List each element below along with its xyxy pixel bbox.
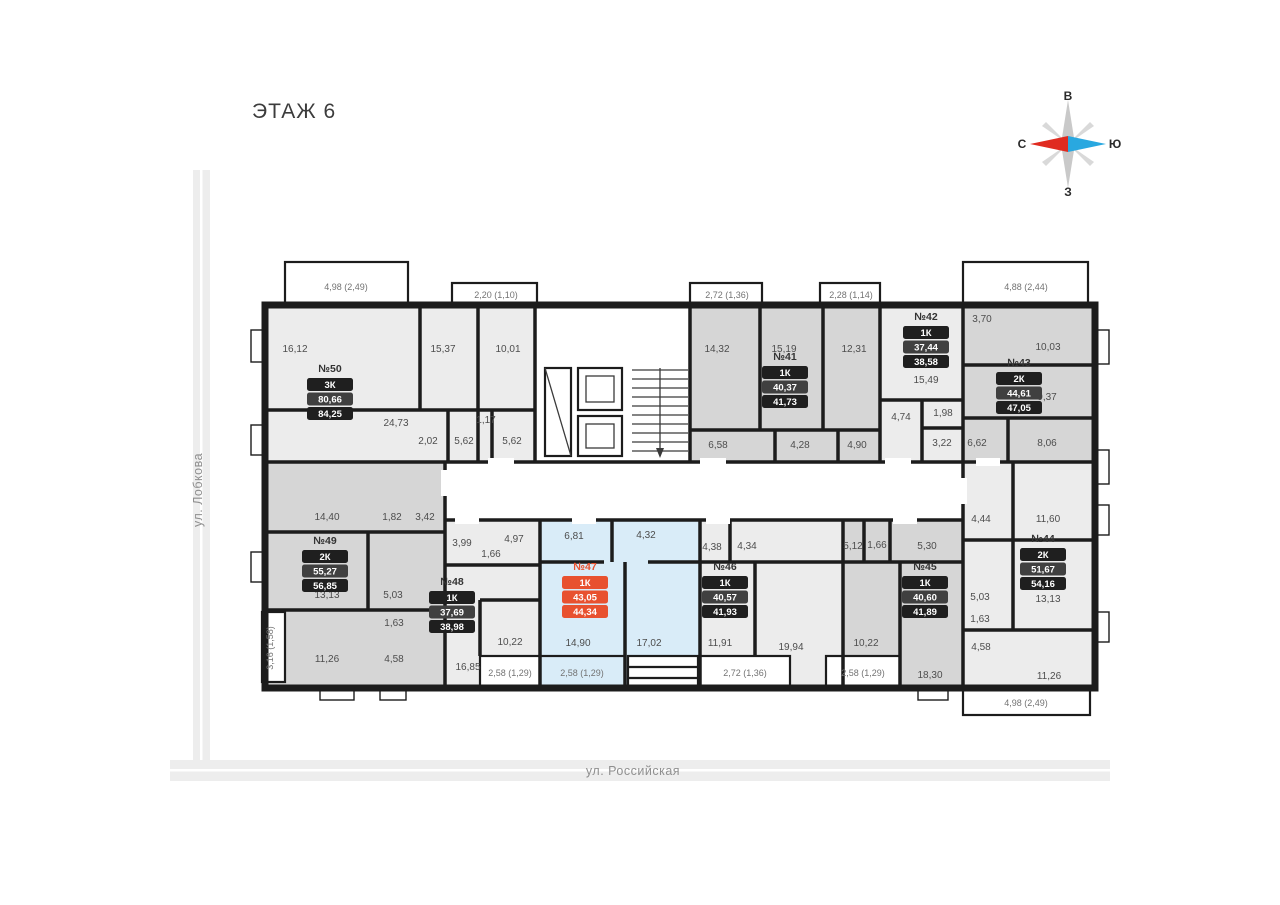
room-area-label: 16,12 <box>282 344 307 355</box>
room-area-label: 2,02 <box>418 436 438 447</box>
badge-value-area_with_balcony: 38,98 <box>440 622 464 633</box>
room-area-label: 3,70 <box>972 314 992 325</box>
apartment-number[interactable]: №47 <box>573 561 597 573</box>
compass: В Ю З С <box>1018 89 1122 199</box>
apartment-number[interactable]: №49 <box>313 535 337 547</box>
room-area-label: 24,73 <box>383 418 408 429</box>
balcony-dim-label: 4,98 (2,49) <box>1004 698 1048 708</box>
badge-value-type: 1К <box>920 328 931 339</box>
balcony-dim-label: 4,88 (2,44) <box>1004 282 1048 292</box>
room-area-label: 1,17 <box>476 415 496 426</box>
compass-needle-red <box>1030 136 1068 152</box>
badge-value-type: 2К <box>1037 550 1048 561</box>
street-label-rossiyskaya: ул. Российская <box>586 764 680 778</box>
room-area-label: 3,99 <box>452 538 472 549</box>
balcony-dim-label: 2,28 (1,14) <box>829 290 873 300</box>
room-area-label: 10,22 <box>497 637 522 648</box>
room-area-label: 1,66 <box>481 549 501 560</box>
apartment-number[interactable]: №50 <box>318 363 342 375</box>
room-area-label: 19,94 <box>778 642 803 653</box>
room-area-label: 10,01 <box>495 344 520 355</box>
room-area-label: 1,66 <box>867 540 887 551</box>
core-area <box>535 305 690 462</box>
room-area-label: 15,49 <box>913 375 938 386</box>
compass-label-s: С <box>1018 137 1027 151</box>
badge-value-area_with_balcony: 38,58 <box>914 357 938 368</box>
compass-label-z: З <box>1064 185 1072 199</box>
badge-value-area_total: 40,37 <box>773 383 797 394</box>
room-area-label: 6,58 <box>708 440 728 451</box>
badge-value-type: 1К <box>579 578 590 589</box>
room-area-label: 5,03 <box>383 590 403 601</box>
badge-value-area_total: 55,27 <box>313 567 337 578</box>
room-area-label: 4,58 <box>971 642 991 653</box>
room-area-label: 3,42 <box>415 512 435 523</box>
badge-value-area_total: 40,57 <box>713 593 737 604</box>
room-area-label: 14,90 <box>565 638 590 649</box>
room-area-label: 4,74 <box>891 412 911 423</box>
badge-value-area_total: 80,66 <box>318 395 342 406</box>
apartment-number[interactable]: №46 <box>713 561 737 573</box>
badge-value-type: 3К <box>324 380 335 391</box>
badge-value-area_with_balcony: 47,05 <box>1007 403 1031 414</box>
street-lobkova-band: ул. Лобкова <box>191 170 210 761</box>
room-area-label: 15,37 <box>430 344 455 355</box>
unit-50-area[interactable] <box>265 305 535 462</box>
room-area-label: 1,82 <box>382 512 402 523</box>
badge-value-type: 1К <box>919 578 930 589</box>
room-area-label: 11,91 <box>708 638 733 649</box>
room-area-label: 5,62 <box>502 436 522 447</box>
room-area-label: 1,63 <box>384 618 404 629</box>
badge-value-area_with_balcony: 84,25 <box>318 409 342 420</box>
room-area-label: 18,30 <box>917 670 942 681</box>
entrance-porch <box>628 656 698 688</box>
compass-label-v: В <box>1064 89 1073 103</box>
apartment-number[interactable]: №43 <box>1007 357 1031 369</box>
room-area-label: 6,81 <box>564 531 584 542</box>
room-area-label: 14,32 <box>704 344 729 355</box>
badge-value-area_total: 43,05 <box>573 593 597 604</box>
balcony-dim-label: 2,58 (1,29) <box>488 668 532 678</box>
badge-value-area_total: 40,60 <box>913 593 937 604</box>
room-area-label: 3,22 <box>932 438 952 449</box>
room-area-label: 13,13 <box>1035 594 1060 605</box>
badge-value-type: 1К <box>779 368 790 379</box>
room-area-label: 5,03 <box>970 592 990 603</box>
room-area-label: 1,63 <box>970 614 990 625</box>
badge-value-area_total: 37,69 <box>440 608 464 619</box>
room-area-label: 10,22 <box>853 638 878 649</box>
apartment-number[interactable]: №48 <box>440 576 464 588</box>
room-area-label: 14,40 <box>314 512 339 523</box>
room-area-label: 11,26 <box>315 654 340 665</box>
room-area-label: 4,38 <box>702 542 722 553</box>
balcony-dim-label: 2,20 (1,10) <box>474 290 518 300</box>
room-area-label: 4,97 <box>504 534 524 545</box>
room-area-label: 16,85 <box>455 662 480 673</box>
badge-value-area_with_balcony: 54,16 <box>1031 579 1055 590</box>
room-area-label: 12,31 <box>841 344 866 355</box>
room-area-label: 4,34 <box>737 541 757 552</box>
balcony-dim-label: 2,58 (1,29) <box>560 668 604 678</box>
corridor-area <box>445 462 963 520</box>
balcony-dim-label: 2,72 (1,36) <box>705 290 749 300</box>
badge-value-area_with_balcony: 41,93 <box>713 607 737 618</box>
room-area-label: 10,03 <box>1035 342 1060 353</box>
badge-value-area_total: 37,44 <box>914 343 938 354</box>
floor-plan-page: ЭТАЖ 6 ул. Лобкова ул. Российская В Ю З … <box>0 0 1280 905</box>
room-area-label: 1,98 <box>933 408 953 419</box>
unit-49-area[interactable] <box>265 462 445 688</box>
room-area-label: 4,32 <box>636 530 656 541</box>
balcony-dim-label: 2,72 (1,36) <box>723 668 767 678</box>
apartment-number[interactable]: №42 <box>914 311 938 323</box>
badge-value-area_with_balcony: 41,73 <box>773 397 797 408</box>
room-area-label: 5,62 <box>454 436 474 447</box>
floor-plan-canvas: ул. Лобкова ул. Российская В Ю З С <box>0 0 1280 905</box>
room-area-label: 8,06 <box>1037 438 1057 449</box>
street-label-lobkova: ул. Лобкова <box>191 453 205 527</box>
room-area-label: 4,44 <box>971 514 991 525</box>
room-area-label: 6,62 <box>967 438 987 449</box>
badge-value-type: 1К <box>446 593 457 604</box>
badge-value-area_total: 51,67 <box>1031 565 1055 576</box>
room-area-label: 5,30 <box>917 541 937 552</box>
street-rossiyskaya-band: ул. Российская <box>170 760 1110 781</box>
room-area-label: 11,60 <box>1036 514 1061 525</box>
apartment-number[interactable]: №44 <box>1031 533 1055 545</box>
apartment-number[interactable]: №41 <box>773 351 797 363</box>
badge-value-area_with_balcony: 56,85 <box>313 581 337 592</box>
room-area-label: 4,90 <box>847 440 867 451</box>
badge-value-area_total: 44,61 <box>1007 389 1031 400</box>
badge-value-type: 2К <box>1013 374 1024 385</box>
balcony-dim-label: 3,16 (1,58) <box>265 626 275 670</box>
room-area-label: 17,02 <box>636 638 661 649</box>
balcony-dim-label: 4,98 (2,49) <box>324 282 368 292</box>
room-area-label: 5,12 <box>843 541 863 552</box>
badge-value-area_with_balcony: 41,89 <box>913 607 937 618</box>
room-area-label: 11,26 <box>1037 671 1062 682</box>
badge-value-area_with_balcony: 44,34 <box>573 607 597 618</box>
room-area-label: 4,58 <box>384 654 404 665</box>
badge-value-type: 1К <box>719 578 730 589</box>
room-area-label: 4,28 <box>790 440 810 451</box>
compass-label-yu: Ю <box>1109 137 1121 151</box>
balcony-dim-label: 2,58 (1,29) <box>841 668 885 678</box>
badge-value-type: 2К <box>319 552 330 563</box>
compass-needle-blue <box>1068 136 1106 152</box>
apartment-number[interactable]: №45 <box>913 561 937 573</box>
